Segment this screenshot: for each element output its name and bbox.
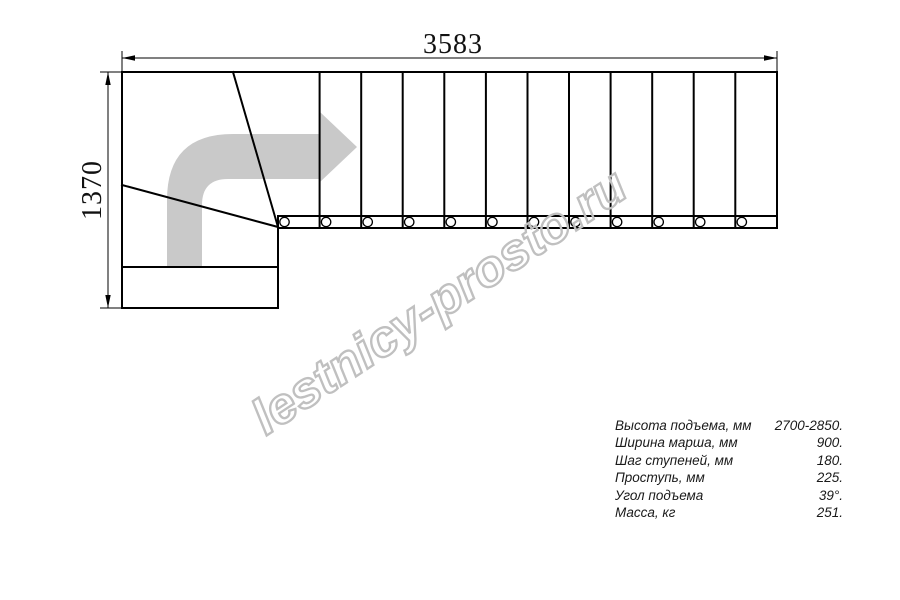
spec-label: Высота подъема, мм [615,417,751,434]
spec-row: Проступь, мм225. [615,469,843,486]
spec-row: Ширина марша, мм900. [615,434,843,451]
spec-label: Проступь, мм [615,469,705,486]
dim-arrowhead-bottom [105,295,110,308]
spec-label: Ширина марша, мм [615,434,738,451]
tread-lines [320,72,736,228]
spec-label: Угол подъема [615,487,703,504]
stair-plan-page: 3583 1370 lestnicy-prosto.ru Высота подъ… [0,0,900,600]
dim-arrowhead-left [122,55,135,60]
spec-row: Угол подъема39°. [615,487,843,504]
spec-row: Масса, кг251. [615,504,843,521]
spec-row: Шаг ступеней, мм180. [615,452,843,469]
spec-label: Масса, кг [615,504,675,521]
spec-value: 225. [817,469,843,486]
watermark-text: lestnicy-prosto.ru [241,157,636,445]
spec-value: 2700-2850. [775,417,843,434]
dim-arrowhead-top [105,72,110,85]
dim-height-label: 1370 [77,160,108,220]
spec-value: 251. [817,504,843,521]
spec-value: 39°. [819,487,843,504]
direction-arrow [167,112,357,266]
specs-table: Высота подъема, мм2700-2850.Ширина марша… [615,417,843,521]
spec-value: 180. [817,452,843,469]
spec-label: Шаг ступеней, мм [615,452,733,469]
dim-width-label: 3583 [423,29,483,60]
spec-row: Высота подъема, мм2700-2850. [615,417,843,434]
dim-arrowhead-right [764,55,777,60]
spec-value: 900. [817,434,843,451]
